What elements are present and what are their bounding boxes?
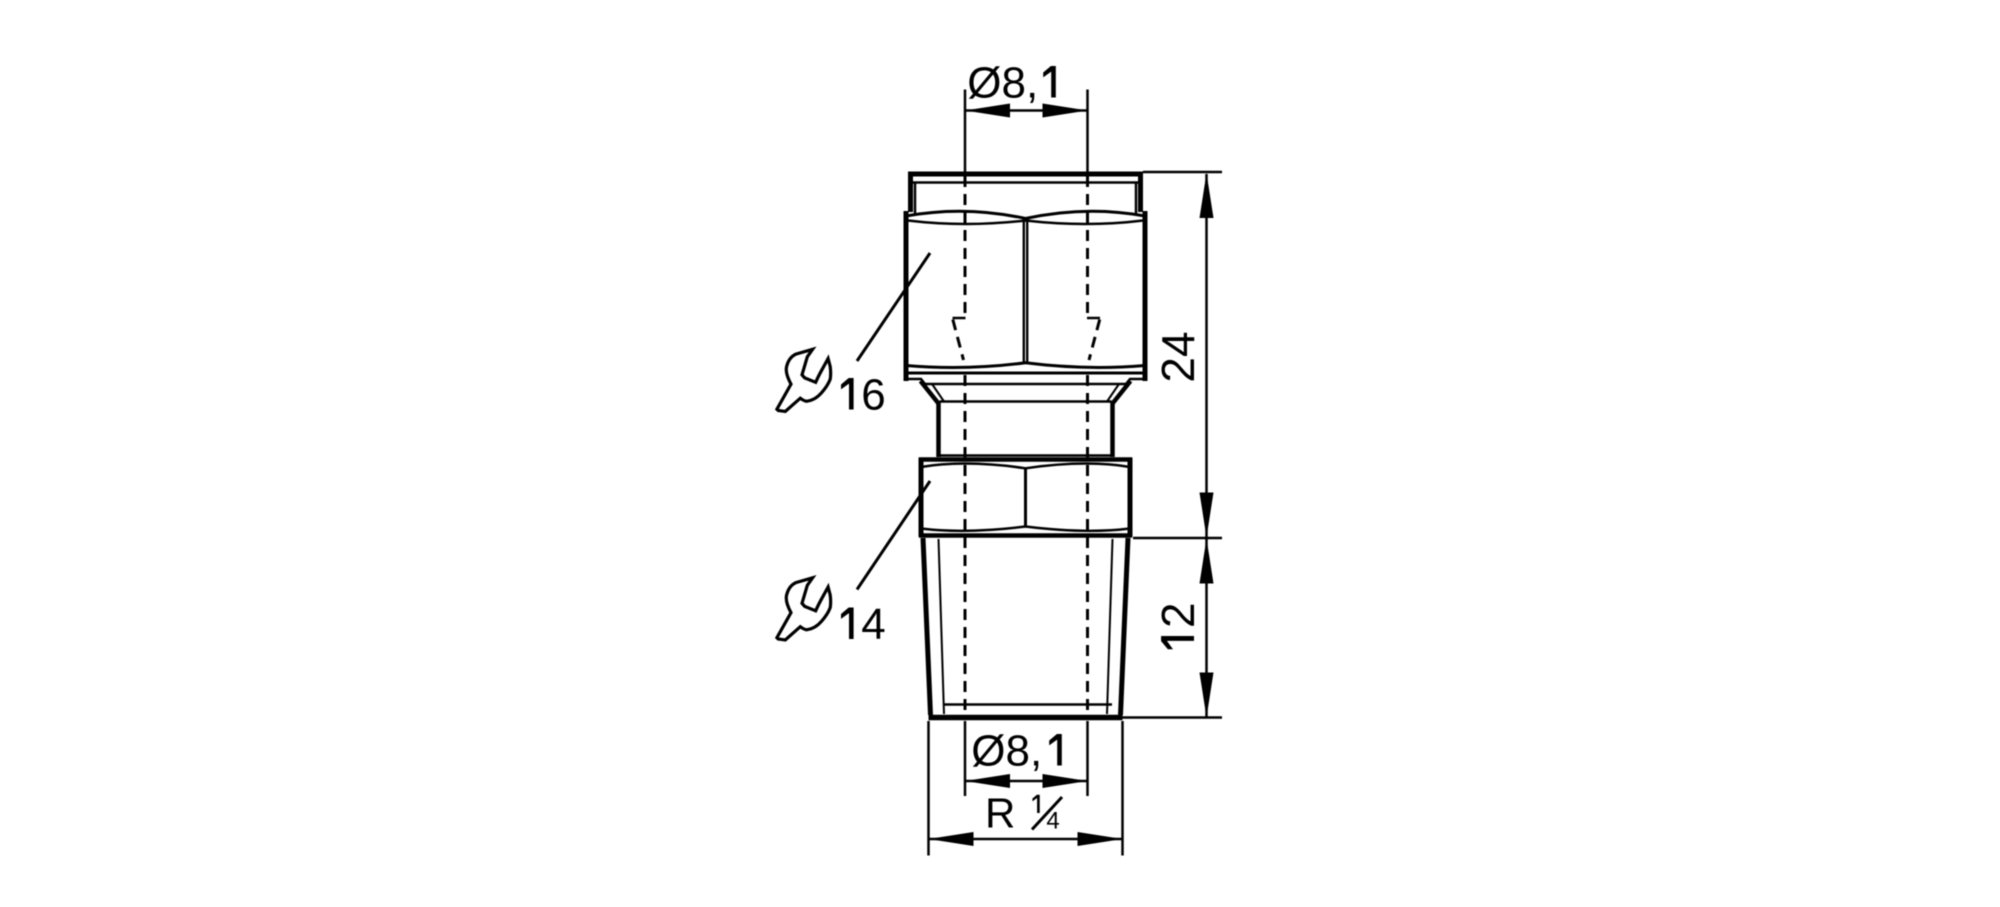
svg-text:4: 4 bbox=[1046, 808, 1059, 835]
svg-text:Ø8,: Ø8, bbox=[967, 59, 1038, 108]
svg-text:R: R bbox=[985, 790, 1015, 837]
svg-text:Ø8,: Ø8, bbox=[971, 727, 1042, 776]
svg-text:6: 6 bbox=[861, 371, 885, 420]
svg-text:24: 24 bbox=[1152, 331, 1204, 382]
svg-text:4: 4 bbox=[861, 600, 885, 649]
svg-text:2: 2 bbox=[1152, 602, 1204, 628]
